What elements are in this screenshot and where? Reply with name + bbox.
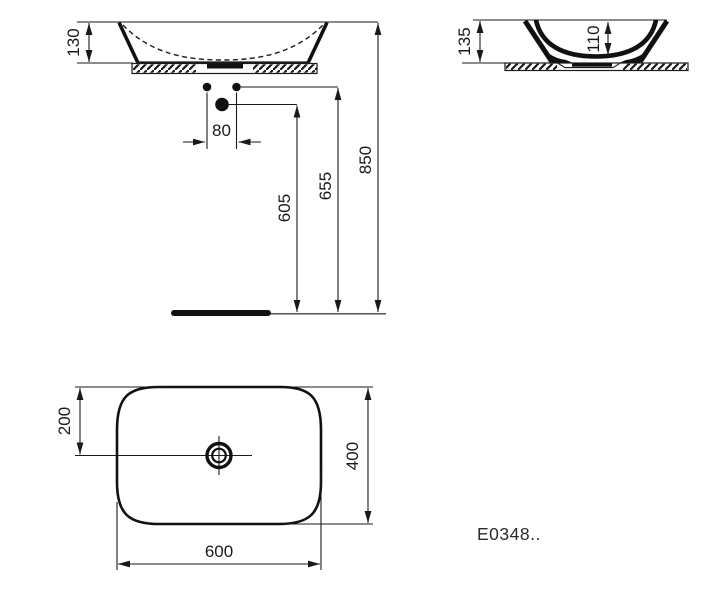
dim-label-400: 400	[343, 442, 362, 470]
dim-label-110: 110	[584, 25, 603, 52]
dim-label-850: 850	[356, 146, 375, 174]
dim-label-130: 130	[64, 28, 83, 56]
washbasin-dimension-drawing: 130 80 605 655 850	[0, 0, 715, 605]
hatch-left	[133, 64, 196, 72]
front-counter-strip	[132, 64, 317, 74]
plan-view: 200 400 600	[55, 387, 373, 570]
dim-label-655: 655	[316, 172, 335, 200]
basin-right-wall	[308, 23, 327, 64]
dim-hole-spacing: 80	[183, 121, 261, 142]
dim-label-135: 135	[455, 27, 474, 55]
side-hatch-right	[623, 64, 687, 70]
product-code: E0348..	[477, 524, 541, 544]
side-view: 135 110	[455, 20, 688, 71]
dim-label-605: 605	[275, 194, 294, 222]
dim-tap-hole-height: 655	[316, 88, 338, 312]
inner-bowl-dashed-profile	[123, 25, 323, 60]
dim-rim-height: 850	[356, 23, 378, 312]
hatch-right	[253, 64, 317, 72]
tap-hole-dot-right	[232, 83, 241, 92]
dim-label-200: 200	[55, 407, 74, 435]
tap-hole-dot-left	[203, 83, 212, 92]
dim-label-80: 80	[212, 121, 231, 140]
basin-left-wall	[119, 23, 138, 64]
technical-drawing-page: 130 80 605 655 850	[0, 0, 715, 605]
dim-overall-height: 135	[455, 21, 506, 63]
side-hatch-left	[506, 64, 557, 70]
dim-label-600: 600	[205, 542, 233, 561]
front-view: 130 80 605 655 850	[64, 22, 386, 314]
dim-bowl-depth: 110	[584, 22, 608, 55]
mixer-hole-dot	[215, 98, 229, 112]
dim-mixer-hole-height: 605	[275, 106, 297, 313]
side-drain-bar	[572, 63, 612, 66]
floor-line	[174, 313, 386, 314]
drain-section-bar	[207, 64, 243, 69]
side-counter-strip	[505, 63, 688, 71]
